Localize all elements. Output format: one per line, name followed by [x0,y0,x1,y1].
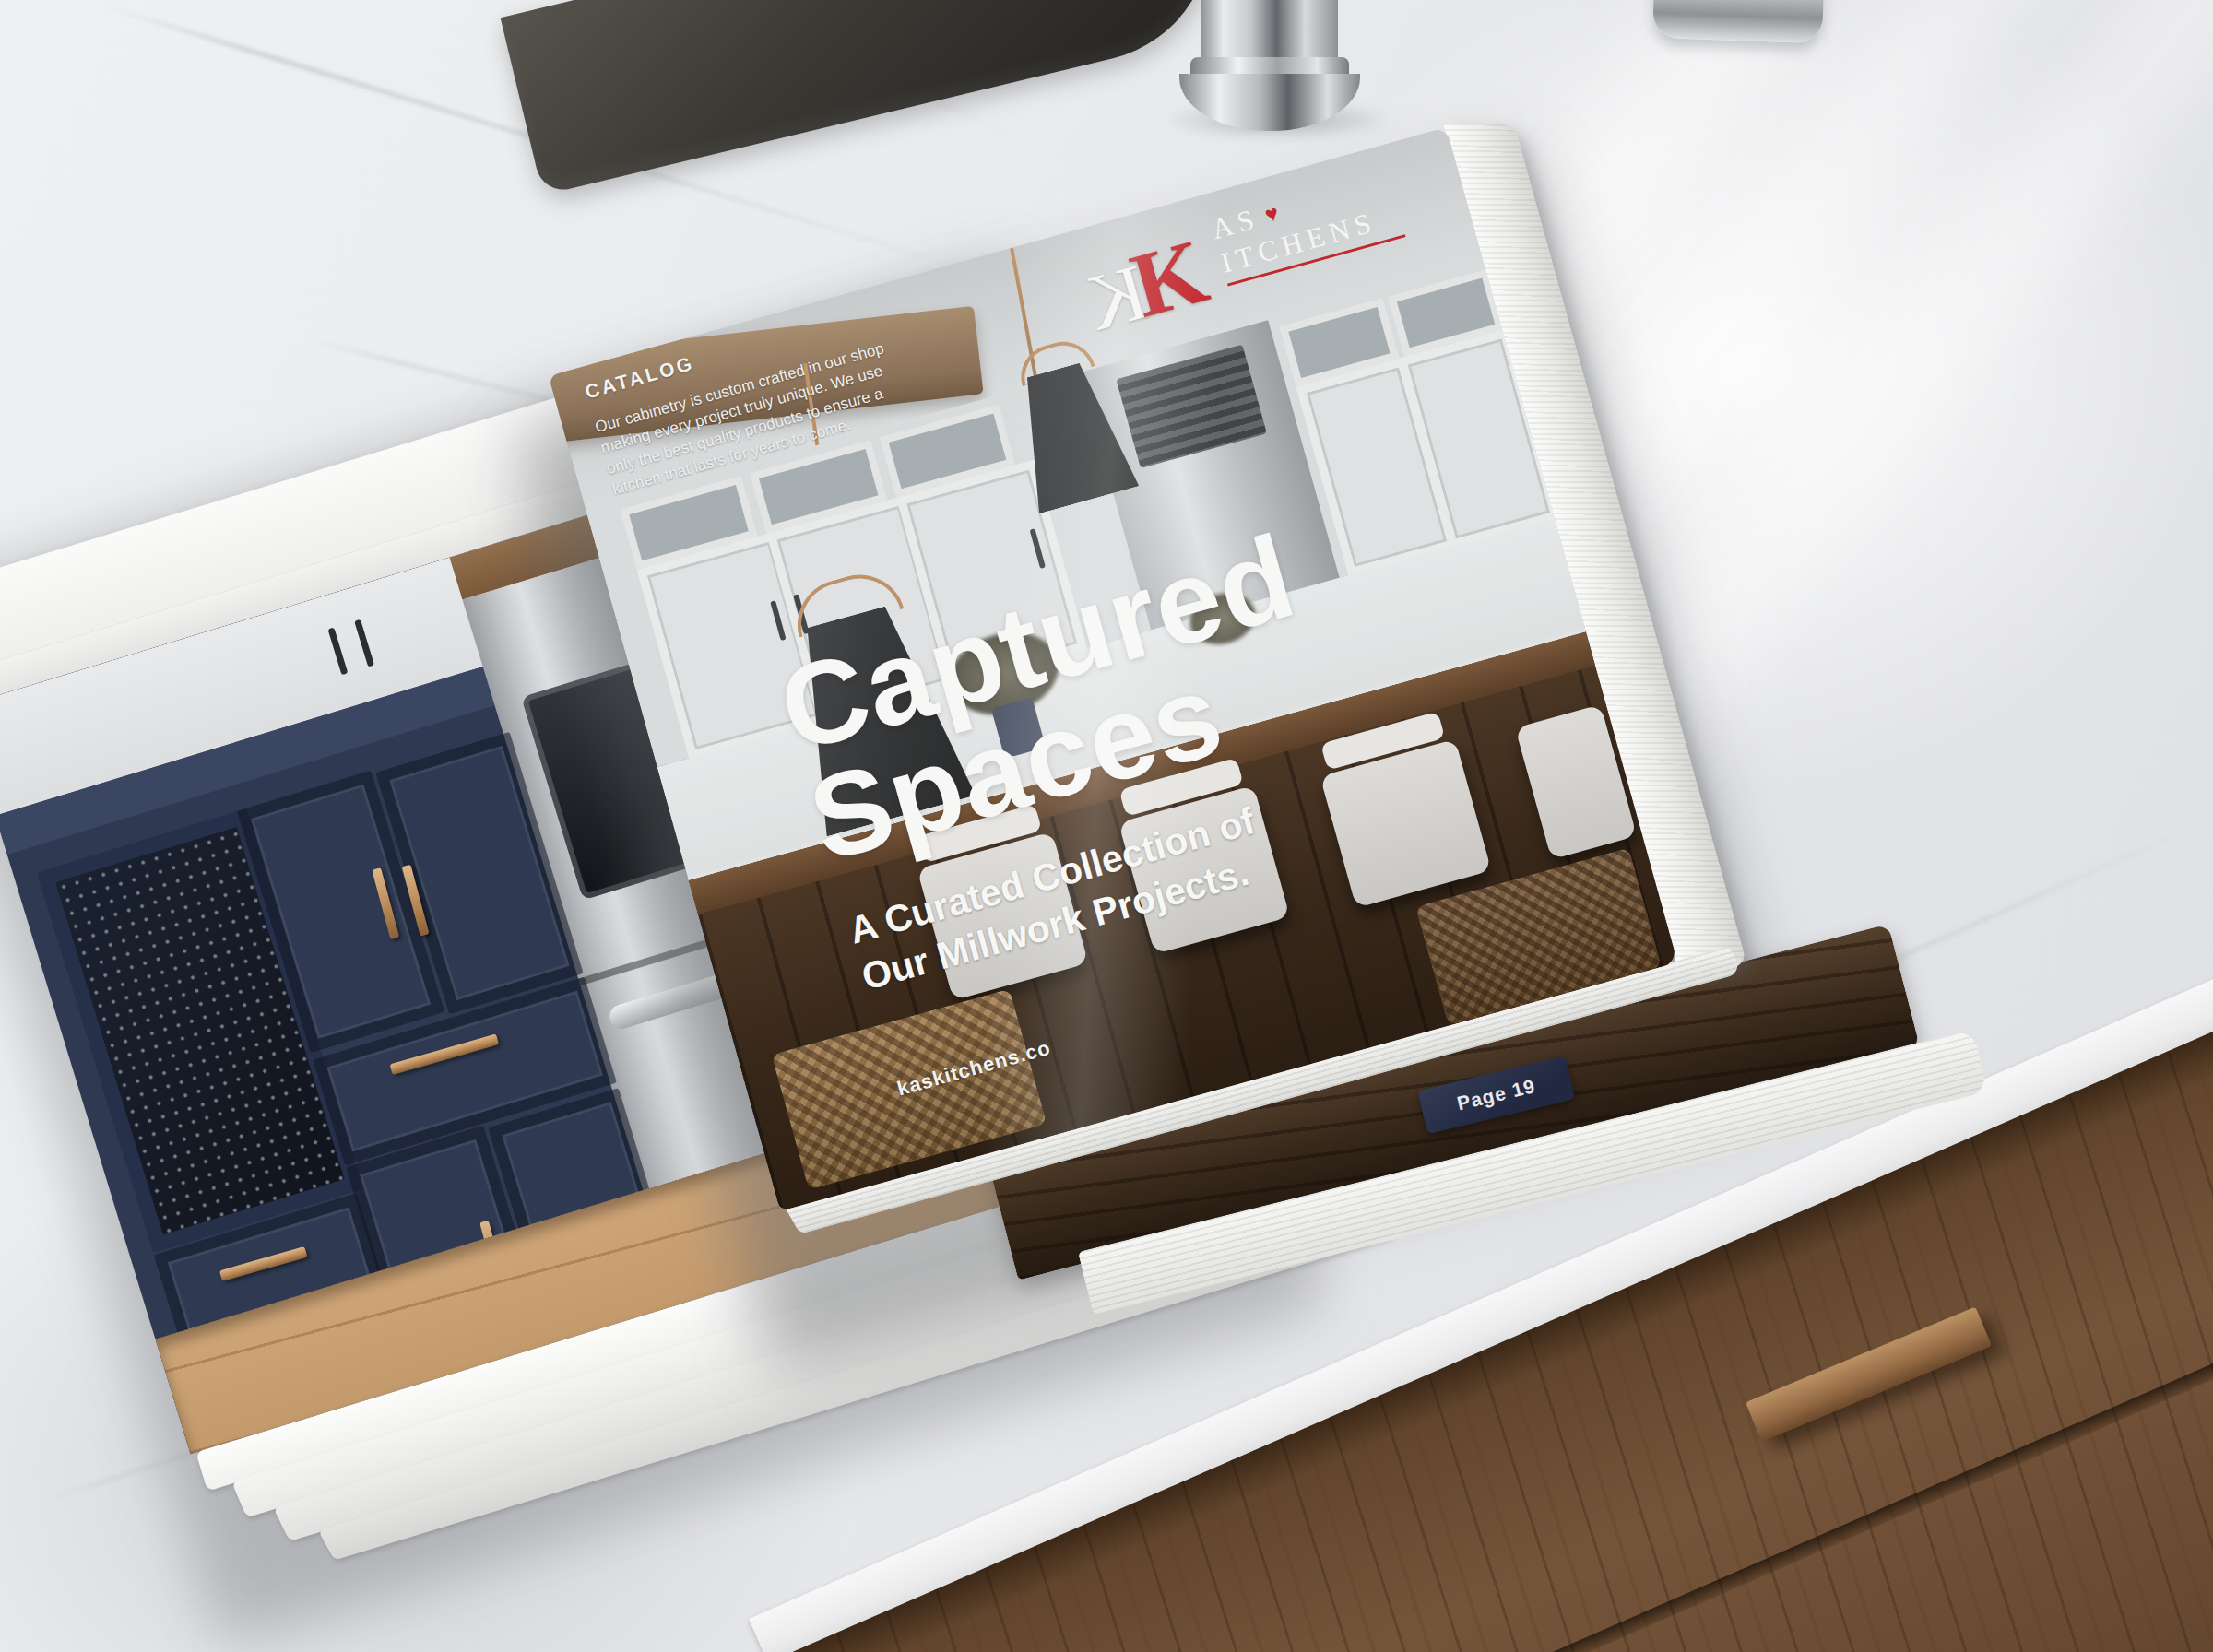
kitchen-countertop-scene: CATALOG Our cabinetry is custom crafted … [0,0,2213,1652]
drawer-handle [1746,1306,1992,1441]
soap-dispenser-base [1652,0,1824,43]
page-tab-label: Page 19 [1455,1075,1538,1115]
